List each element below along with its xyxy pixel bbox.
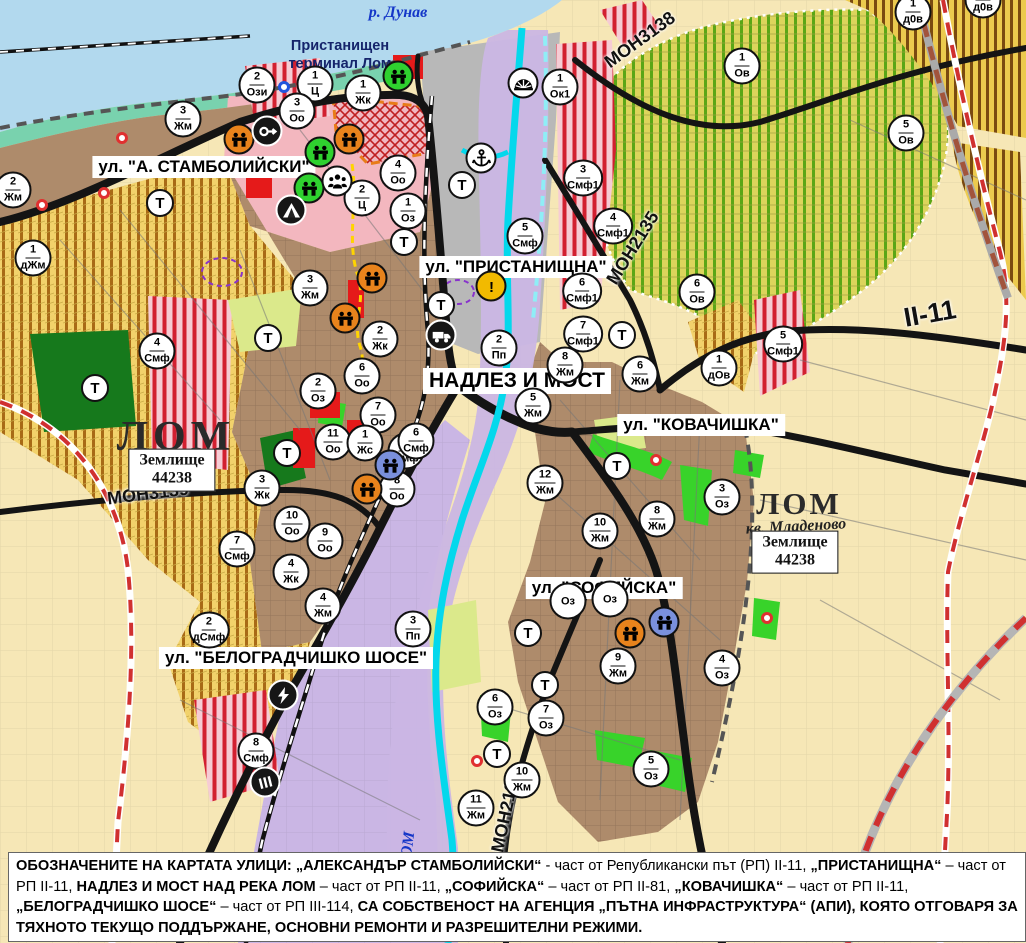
- zone-marker-code: Жм: [174, 120, 192, 133]
- legend-note-segment: „БЕЛОГРАДЧИШКО ШОСЕ“: [16, 899, 216, 915]
- zone-marker: 6Оо: [344, 358, 381, 395]
- zone-marker-code: Жм: [301, 289, 319, 302]
- zone-marker-number: 5: [776, 331, 790, 345]
- stop-dot-icon: [98, 187, 110, 199]
- zone-marker-code: Жс: [357, 444, 373, 457]
- zone-marker: 4Оз: [704, 650, 741, 687]
- zone-marker-number: 7: [371, 402, 385, 416]
- t-marker: Т: [146, 189, 174, 217]
- zone-marker-number: 3: [303, 275, 317, 289]
- zone-marker: 11Жм: [458, 790, 495, 827]
- zone-marker-code: Оо: [354, 377, 369, 390]
- t-marker: Т: [448, 171, 476, 199]
- zone-marker-code: дЖм: [20, 259, 45, 272]
- zone-marker: 3Жк: [244, 470, 281, 507]
- t-marker: Т: [427, 291, 455, 319]
- zone-marker: 9Жм: [600, 648, 637, 685]
- zone-marker-code: Смф1: [567, 179, 599, 192]
- zone-marker-number: 2: [355, 185, 369, 199]
- monument-icon: [649, 607, 680, 638]
- zone-marker-code: Жк: [283, 573, 298, 586]
- zone-marker-code: Ов: [734, 67, 749, 80]
- zone-marker: 5Ов: [888, 115, 925, 152]
- zone-marker-code: Оз: [715, 498, 729, 511]
- zone-marker: Оз: [592, 581, 629, 618]
- zone-marker-number: 1: [358, 430, 372, 444]
- zone-marker-code: Смф1: [566, 292, 598, 305]
- t-marker: Т: [608, 321, 636, 349]
- zone-marker-number: 1: [356, 80, 370, 94]
- zone-marker-number: 3: [255, 475, 269, 489]
- zone-marker-number: 3: [715, 484, 729, 498]
- zone-marker-number: 8: [558, 352, 572, 366]
- anchor-icon: [466, 143, 497, 174]
- zone-marker-code: Ов: [689, 293, 704, 306]
- zone-marker-number: 2: [492, 335, 506, 349]
- monument-icon: [352, 474, 383, 505]
- zone-marker-code: Оо: [284, 525, 299, 538]
- zone-marker-code: Жм: [536, 484, 554, 497]
- zone-marker-code: Жм: [524, 407, 542, 420]
- zone-marker: 2дСмф: [189, 612, 230, 649]
- zone-marker-code: Ц: [358, 199, 366, 212]
- zone-marker: 4Оо: [380, 155, 417, 192]
- zone-marker: 2Жк: [362, 321, 399, 358]
- zone-marker-code: Жм: [314, 607, 332, 620]
- station-icon: [250, 767, 281, 798]
- legend-note-segment: „СОФИЙСКА“: [445, 879, 545, 895]
- zone-marker: 1д0в: [965, 0, 1002, 19]
- zone-marker: 5Жм: [515, 388, 552, 425]
- t-marker: Т: [81, 374, 109, 402]
- zone-marker-code: Оо: [325, 443, 340, 456]
- markers-layer: 2Ози1Ц3Оо1Жк4Оо2Ц1Оз1Ок11Ов1д0в1д0в5Ов3С…: [0, 0, 1026, 943]
- t-marker: Т: [254, 324, 282, 352]
- zone-marker-code: Оз: [488, 708, 502, 721]
- zone-marker-number: 2: [373, 326, 387, 340]
- zone-marker: 6Оз: [477, 689, 514, 726]
- zone-marker-code: Оо: [317, 542, 332, 555]
- legend-note-segment: – част от РП II-81,: [544, 879, 674, 895]
- zone-marker-number: 4: [606, 213, 620, 227]
- zone-marker-number: 5: [899, 120, 913, 134]
- zone-marker-code: Оз: [401, 212, 415, 225]
- t-marker: Т: [390, 228, 418, 256]
- zone-marker: 3Оз: [704, 479, 741, 516]
- zone-marker: 10Жм: [504, 762, 541, 799]
- zone-marker: 3Смф1: [563, 160, 603, 197]
- zone-marker-number: 4: [715, 655, 729, 669]
- zone-marker-number: 5: [644, 756, 658, 770]
- stop-dot-icon: [471, 755, 483, 767]
- zone-marker-number: 1: [401, 198, 415, 212]
- zone-marker-number: 6: [355, 363, 369, 377]
- zone-marker-code: д0в: [973, 1, 993, 14]
- zone-marker-code: Оо: [389, 490, 404, 503]
- stop-dot-icon: [650, 454, 662, 466]
- zone-marker-number: 6: [409, 428, 423, 442]
- zone-marker: 2Пп: [481, 330, 518, 367]
- zone-marker-code: Жк: [355, 94, 370, 107]
- zone-marker: 5Смф1: [763, 326, 803, 363]
- zone-marker-number: 8: [249, 738, 263, 752]
- zone-marker-code: Оз: [603, 593, 617, 606]
- zone-marker: 8Смф: [238, 733, 275, 770]
- zone-marker: 2Жм: [0, 172, 32, 209]
- svg-text:!: !: [489, 279, 494, 296]
- zone-marker-number: 6: [690, 279, 704, 293]
- zoning-map-canvas[interactable]: ул. "А. СТАМБОЛИЙСКИ"ул. "ПРИСТАНИЩНА"НА…: [0, 0, 1026, 943]
- zone-marker: 6Смф1: [562, 273, 602, 310]
- zone-marker-number: 10: [512, 767, 532, 781]
- zone-marker-number: 1: [553, 74, 567, 88]
- zone-marker-number: 1: [712, 355, 726, 369]
- people-icon: [322, 166, 353, 197]
- zone-marker-code: Жм: [648, 520, 666, 533]
- zone-marker-number: 2: [202, 617, 216, 631]
- zone-marker-code: Жм: [467, 809, 485, 822]
- zone-marker-number: 11: [466, 795, 486, 809]
- legend-note-segment: – част от РП II-11,: [316, 879, 445, 895]
- zone-marker-number: 10: [590, 518, 610, 532]
- zone-marker: 6Жм: [622, 356, 659, 393]
- t-marker: Т: [531, 671, 559, 699]
- zone-marker-code: Ц: [311, 85, 319, 98]
- zone-marker: 4Жм: [305, 588, 342, 625]
- t-marker: Т: [273, 439, 301, 467]
- t-marker: Т: [514, 619, 542, 647]
- zone-marker-code: Пп: [492, 349, 507, 362]
- monument-icon: [383, 61, 414, 92]
- zone-marker-code: дОв: [708, 369, 730, 382]
- zone-marker-number: 9: [318, 528, 332, 542]
- weir-icon: [508, 68, 539, 99]
- t-marker: Т: [603, 452, 631, 480]
- zone-marker: 8Жм: [547, 347, 584, 384]
- legend-note-segment: НАДЛЕЗ И МОСТ НАД РЕКА ЛОМ: [77, 879, 316, 895]
- zone-marker-number: 4: [391, 160, 405, 174]
- zone-marker-code: Жм: [556, 366, 574, 379]
- zone-marker-code: Оз: [311, 392, 325, 405]
- zone-marker-number: 3: [290, 98, 304, 112]
- zone-marker-code: д0в: [903, 13, 923, 26]
- monument-icon: [305, 137, 336, 168]
- zone-marker: 1д0в: [895, 0, 932, 31]
- zone-marker: 1Жк: [345, 75, 382, 112]
- zone-marker-code: Смф: [403, 442, 429, 455]
- legend-note-segment: – част от РП II-11,: [783, 879, 908, 895]
- zone-marker-code: Ози: [247, 86, 268, 99]
- zone-marker-code: Смф: [224, 550, 250, 563]
- zone-marker-code: Оз: [715, 669, 729, 682]
- zone-marker-code: Смф1: [597, 227, 629, 240]
- zone-marker-number: 4: [284, 559, 298, 573]
- legend-note-segment: ОБОЗНАЧЕНИТЕ НА КАРТАТА УЛИЦИ: „АЛЕКСАНД…: [16, 858, 541, 874]
- lightning-icon: [268, 680, 299, 711]
- zone-marker-number: 5: [518, 223, 532, 237]
- legend-note-segment: – част от РП III-114,: [216, 899, 357, 915]
- zone-marker-number: 8: [650, 506, 664, 520]
- zone-marker: 1дЖм: [15, 240, 52, 277]
- zone-marker-code: Жм: [609, 667, 627, 680]
- key-icon: [252, 116, 283, 147]
- zone-marker-code: Смф1: [767, 345, 799, 358]
- zone-marker: 3Пп: [395, 611, 432, 648]
- zone-marker-number: 4: [150, 338, 164, 352]
- zone-marker-number: 7: [539, 705, 553, 719]
- stop-dot-icon: [116, 132, 128, 144]
- zone-marker-code: Смф: [144, 352, 170, 365]
- legend-note: ОБОЗНАЧЕНИТЕ НА КАРТАТА УЛИЦИ: „АЛЕКСАНД…: [8, 852, 1026, 942]
- zone-marker: 9Оо: [307, 523, 344, 560]
- zone-marker-code: Жк: [254, 489, 269, 502]
- zone-marker: 2Оз: [300, 373, 337, 410]
- zone-marker: 1Ок1: [542, 69, 579, 106]
- zone-marker: 1дОв: [701, 350, 738, 387]
- zone-marker-number: 2: [250, 72, 264, 86]
- zone-marker-number: 12: [535, 470, 555, 484]
- zone-marker-code: Оз: [561, 595, 575, 608]
- zone-marker: 4Жк: [273, 554, 310, 591]
- zone-marker-code: Смф1: [567, 335, 599, 348]
- zone-marker-number: 5: [526, 393, 540, 407]
- zone-marker-number: 7: [230, 536, 244, 550]
- zone-marker-code: Пп: [406, 630, 421, 643]
- zone-marker-number: 4: [316, 593, 330, 607]
- zone-marker: 3Жм: [165, 101, 202, 138]
- zone-marker-code: Жм: [513, 781, 531, 794]
- zone-marker: 5Смф: [507, 218, 544, 255]
- monument-icon: [224, 124, 255, 155]
- t-marker: Т: [483, 740, 511, 768]
- stop-dot-icon: [761, 612, 773, 624]
- zone-marker-number: 3: [176, 106, 190, 120]
- stop-dot-icon: [36, 199, 48, 211]
- zone-marker-code: Жк: [372, 340, 387, 353]
- zone-marker-code: Жм: [591, 532, 609, 545]
- zone-marker-code: Оз: [539, 719, 553, 732]
- zone-marker-number: 2: [311, 378, 325, 392]
- zone-marker-code: Оз: [644, 770, 658, 783]
- zone-marker-code: Смф: [243, 752, 269, 765]
- zone-marker: 3Жм: [292, 270, 329, 307]
- zone-marker-number: 10: [282, 511, 302, 525]
- zone-marker: 1Ов: [724, 48, 761, 85]
- zone-marker: 4Смф: [139, 333, 176, 370]
- truck-icon: [426, 320, 457, 351]
- zone-marker: 1Оз: [390, 193, 427, 230]
- zone-marker: Оз: [550, 583, 587, 620]
- zone-marker: 7Смф: [219, 531, 256, 568]
- zone-marker: 2Ози: [239, 67, 276, 104]
- zone-marker-number: 9: [611, 653, 625, 667]
- zone-marker-number: 11: [323, 429, 343, 443]
- zone-marker-code: Смф: [512, 237, 538, 250]
- zone-marker-number: 1: [906, 0, 920, 13]
- tent-icon: [276, 195, 307, 226]
- zone-marker: 8Жм: [639, 501, 676, 538]
- zone-marker-code: Оо: [289, 112, 304, 125]
- blue-dot-icon: [278, 81, 290, 93]
- zone-marker-code: Оо: [390, 174, 405, 187]
- zone-marker-code: Жм: [631, 375, 649, 388]
- zone-marker-number: 1: [735, 53, 749, 67]
- zone-marker: 3Оо: [279, 93, 316, 130]
- zone-marker-code: дСмф: [193, 631, 226, 644]
- zone-marker-number: 7: [576, 321, 590, 335]
- zone-marker-code: Ок1: [550, 88, 570, 101]
- legend-note-segment: „КОВАЧИШКА“: [674, 879, 783, 895]
- zone-marker-number: 6: [633, 361, 647, 375]
- zone-marker-number: 6: [575, 278, 589, 292]
- legend-note-segment: „ПРИСТАНИЩНА“: [810, 858, 941, 874]
- zone-marker: 4Смф1: [593, 208, 633, 245]
- monument-icon: [357, 263, 388, 294]
- legend-note-segment: - част от Републикански път (РП) II-11,: [541, 858, 810, 874]
- monument-icon: [330, 303, 361, 334]
- zone-marker-code: Ов: [898, 134, 913, 147]
- zone-marker-number: 6: [488, 694, 502, 708]
- zone-marker: 10Жм: [582, 513, 619, 550]
- monument-icon: [615, 618, 646, 649]
- zone-marker-number: 1: [26, 245, 40, 259]
- zone-marker-number: 3: [406, 616, 420, 630]
- monument-icon: [334, 124, 365, 155]
- zone-marker: 10Оо: [274, 506, 311, 543]
- zone-marker: 12Жм: [527, 465, 564, 502]
- zone-marker-number: 3: [576, 165, 590, 179]
- zone-marker: 6Ов: [679, 274, 716, 311]
- zone-marker-number: 2: [6, 177, 20, 191]
- zone-marker-code: Жм: [4, 191, 22, 204]
- warning-icon: !: [476, 271, 507, 302]
- monument-icon: [375, 450, 406, 481]
- zone-marker: 6Смф: [398, 423, 435, 460]
- zone-marker: 7Оз: [528, 700, 565, 737]
- zone-marker-number: 1: [308, 71, 322, 85]
- zone-marker: 5Оз: [633, 751, 670, 788]
